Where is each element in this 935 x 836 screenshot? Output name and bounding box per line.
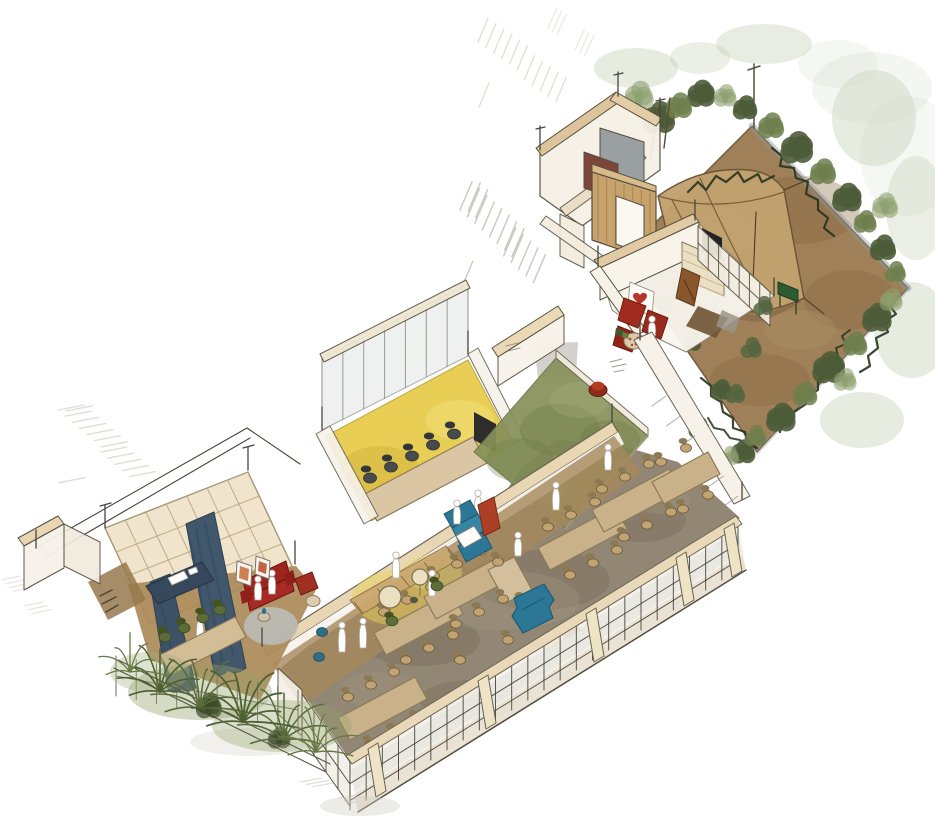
foliage xyxy=(748,344,762,358)
person xyxy=(553,482,559,488)
pencil-hatch xyxy=(494,29,504,53)
pencil-hatch xyxy=(300,778,322,782)
cafe-chairs xyxy=(317,628,328,637)
sketch-canvas: Hand-drawn isometric cutaway illustratio… xyxy=(0,0,935,836)
foliage xyxy=(761,303,773,315)
pencil-hatch xyxy=(511,235,523,263)
person xyxy=(475,490,481,496)
dining-chairs xyxy=(619,533,630,541)
paper-lantern xyxy=(379,586,401,608)
red-pouf-top xyxy=(592,382,605,391)
meeting-chairs xyxy=(424,433,434,440)
person xyxy=(429,570,435,576)
person xyxy=(393,552,399,558)
pencil-hatch xyxy=(502,35,512,59)
pencil-hatch xyxy=(14,587,32,591)
dining-chairs xyxy=(640,515,649,521)
library-chairs xyxy=(178,623,190,633)
dining-chairs xyxy=(565,571,576,579)
pencil-hatch xyxy=(130,472,156,477)
dining-chairs xyxy=(620,473,631,481)
pencil-hatch xyxy=(29,606,47,610)
pencil-hatch xyxy=(101,442,127,447)
dining-chairs xyxy=(366,681,377,689)
dining-chairs xyxy=(424,644,435,652)
pencil-hatch xyxy=(490,209,502,237)
dining-chairs xyxy=(451,620,462,628)
cafe-chairs xyxy=(314,653,325,662)
dining-chairs xyxy=(618,467,627,473)
round-rug xyxy=(244,607,298,645)
nook-glass xyxy=(666,416,680,426)
person xyxy=(515,532,521,538)
dining-chairs xyxy=(503,636,514,644)
pencil-hatch xyxy=(59,478,85,483)
meeting-chairs xyxy=(406,451,419,461)
dining-chairs xyxy=(422,638,431,644)
pencil-hatch xyxy=(519,241,531,269)
floorplan-illustration xyxy=(0,0,935,836)
dining-chairs xyxy=(455,656,466,664)
foliage-wash xyxy=(798,40,878,88)
dining-chairs xyxy=(448,631,459,639)
dining-chairs xyxy=(701,485,710,491)
foliage xyxy=(758,117,775,134)
foliage xyxy=(777,407,796,426)
dining-chairs xyxy=(363,735,372,741)
pencil-hatch xyxy=(548,72,558,96)
dining-chairs xyxy=(676,499,685,505)
library-chairs xyxy=(159,632,171,642)
dining-chairs xyxy=(341,687,350,693)
dining-chairs xyxy=(595,479,604,485)
library-chairs xyxy=(214,605,226,615)
round-table xyxy=(306,596,320,607)
pencil-hatch xyxy=(526,248,538,276)
dining-chairs xyxy=(543,523,554,531)
dining-chairs xyxy=(642,454,651,460)
dining-chairs xyxy=(449,614,458,620)
foliage xyxy=(854,214,869,229)
pencil-hatch xyxy=(72,417,98,422)
dining-chairs xyxy=(617,527,626,533)
meeting-chairs xyxy=(385,462,398,472)
dining-chairs xyxy=(453,650,462,656)
dining-chairs xyxy=(563,565,572,571)
dining-chairs xyxy=(588,492,597,498)
foliage xyxy=(711,383,725,397)
dining-chairs xyxy=(387,662,396,668)
pencil-hatch xyxy=(482,202,494,230)
pencil-hatch xyxy=(497,215,509,243)
dining-chairs xyxy=(644,460,655,468)
pencil-hatch xyxy=(510,40,520,64)
pencil-hatch xyxy=(80,423,106,428)
pencil-hatch xyxy=(556,78,566,102)
pencil-hatch xyxy=(2,576,20,580)
meeting-chairs xyxy=(364,473,377,483)
pencil-hatch xyxy=(6,580,24,584)
pencil-hatch xyxy=(65,411,91,416)
person xyxy=(254,583,261,600)
pencil-hatch xyxy=(108,453,134,458)
roof-outline xyxy=(247,428,300,464)
garden-light xyxy=(764,310,836,350)
person xyxy=(268,577,275,594)
dining-chairs xyxy=(678,505,689,513)
foliage xyxy=(792,135,813,156)
meeting-chairs xyxy=(403,444,413,451)
foliage xyxy=(697,83,715,101)
pencil-hatch xyxy=(25,602,43,606)
pencil-hatch xyxy=(115,459,141,464)
dining-chairs xyxy=(610,540,619,546)
dining-chairs xyxy=(399,650,408,656)
pencil-hatch xyxy=(479,83,489,107)
dining-chairs xyxy=(472,602,481,608)
person xyxy=(605,444,611,450)
pencil-hatch xyxy=(33,609,51,613)
meeting-chairs xyxy=(361,466,371,473)
pencil-hatch xyxy=(505,222,517,250)
person xyxy=(453,507,460,524)
dining-chairs xyxy=(401,656,412,664)
pencil-hatch xyxy=(306,780,328,784)
meeting-chairs xyxy=(382,455,392,462)
foliage-wash xyxy=(820,392,904,448)
wall-scribbles xyxy=(612,364,626,367)
dining-chairs xyxy=(501,630,510,636)
dining-chairs xyxy=(564,505,573,511)
pencil-hatch xyxy=(94,436,120,441)
foliage xyxy=(834,372,849,387)
dining-chairs xyxy=(597,485,608,493)
dining-chairs xyxy=(612,546,623,554)
person xyxy=(454,500,460,506)
foliage xyxy=(793,386,809,402)
foliage xyxy=(714,88,729,103)
foliage xyxy=(752,432,766,446)
person xyxy=(339,622,345,628)
meeting-chairs xyxy=(427,440,440,450)
cafe-chairs xyxy=(431,581,443,591)
pencil-hatch xyxy=(101,447,127,452)
foliage xyxy=(843,187,862,206)
blue-vase xyxy=(262,608,266,614)
dining-chairs xyxy=(450,554,459,560)
paper-lantern xyxy=(412,569,428,585)
person xyxy=(392,559,399,578)
dining-chairs xyxy=(681,444,692,452)
wall-scribbles xyxy=(614,370,624,372)
dining-chairs xyxy=(566,511,577,519)
dining-chairs xyxy=(703,491,714,499)
foliage xyxy=(880,292,895,307)
left-wall xyxy=(64,524,100,584)
nook-glass xyxy=(652,396,666,406)
foliage xyxy=(892,268,906,282)
person xyxy=(338,629,345,652)
dining-chairs xyxy=(452,560,463,568)
meeting-chairs xyxy=(448,429,461,439)
dining-chairs xyxy=(664,502,673,508)
dining-chairs xyxy=(364,675,373,681)
foliage xyxy=(810,163,827,180)
library-chairs xyxy=(197,613,209,623)
dining-chairs xyxy=(498,595,509,603)
dining-chairs xyxy=(588,559,599,567)
person xyxy=(649,316,655,322)
pencil-hatch xyxy=(486,24,496,48)
cafe-chairs xyxy=(386,616,398,626)
person xyxy=(552,489,559,510)
dining-chairs xyxy=(493,558,504,566)
pencil-hatch xyxy=(475,195,487,223)
pencil-hatch xyxy=(313,783,335,787)
stool xyxy=(410,597,418,603)
person xyxy=(255,576,261,582)
dining-chairs xyxy=(586,553,595,559)
pencil-hatch xyxy=(540,67,550,91)
pencil-hatch xyxy=(524,56,534,80)
mosaic-dot xyxy=(631,344,633,346)
ground-shadow xyxy=(320,796,400,816)
dining-chairs xyxy=(666,508,677,516)
foliage xyxy=(733,391,745,403)
dining-chairs xyxy=(679,438,688,444)
mosaic-dot xyxy=(629,338,632,341)
dining-chairs xyxy=(389,668,400,676)
pencil-hatch xyxy=(87,430,113,435)
dining-chairs xyxy=(590,498,601,506)
person xyxy=(514,539,521,556)
foliage xyxy=(870,239,887,256)
foliage-wash xyxy=(670,42,730,74)
pencil-hatch xyxy=(532,61,542,85)
dining-chairs xyxy=(656,458,667,466)
foliage xyxy=(872,197,889,214)
pencil-hatch xyxy=(478,18,488,42)
dining-chairs xyxy=(541,517,550,523)
person xyxy=(359,625,366,648)
foliage xyxy=(843,336,859,352)
dining-chairs xyxy=(474,608,485,616)
person xyxy=(604,451,611,470)
pencil-hatch xyxy=(533,255,545,283)
dining-chairs xyxy=(491,552,500,558)
meeting-chairs xyxy=(445,422,455,429)
wall-scribbles xyxy=(610,359,622,362)
person xyxy=(360,618,366,624)
dining-chairs xyxy=(496,589,505,595)
dining-chairs xyxy=(343,693,354,701)
pencil-hatch xyxy=(517,46,527,70)
dining-chairs xyxy=(654,452,663,458)
foliage-wash xyxy=(716,24,812,64)
dining-chairs xyxy=(642,521,653,529)
pencil-hatch xyxy=(122,465,148,470)
